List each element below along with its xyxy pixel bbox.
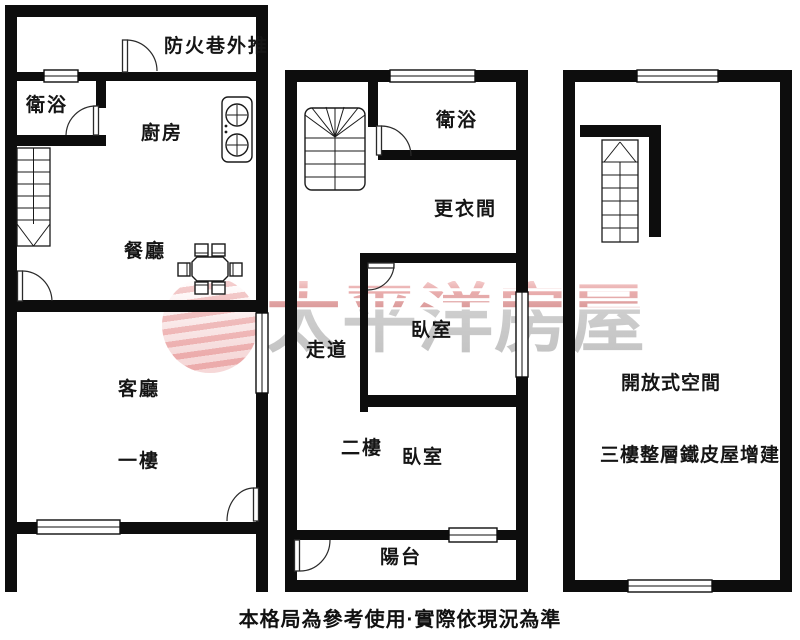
floor-plan-second-floor xyxy=(285,70,528,592)
wall xyxy=(285,580,528,592)
stairs-icon xyxy=(305,107,365,190)
stove-icon xyxy=(222,97,252,162)
label-balcony: 陽台 xyxy=(380,548,422,568)
wall xyxy=(360,395,528,407)
door-leaf xyxy=(254,488,259,521)
wall xyxy=(5,5,17,592)
label-open-space: 開放式空間 xyxy=(621,374,721,394)
door-arc xyxy=(300,540,330,571)
door-leaf xyxy=(295,540,300,571)
floor-plan-first-floor xyxy=(5,5,268,592)
door-arc xyxy=(127,40,157,71)
label-fire-lane: 防火巷外推 xyxy=(164,37,269,57)
wall xyxy=(368,82,378,127)
label-dressing-room: 更衣間 xyxy=(434,200,497,220)
door-arc xyxy=(66,106,96,135)
stairs-icon xyxy=(17,148,50,246)
label-bedroom-lower: 臥室 xyxy=(402,448,444,468)
label-corridor: 走道 xyxy=(306,341,348,361)
door-leaf xyxy=(18,271,23,301)
wall xyxy=(360,253,368,412)
wall xyxy=(378,150,528,160)
door-leaf xyxy=(377,126,382,155)
label-second-floor: 二樓 xyxy=(341,439,383,459)
label-bedroom-upper: 臥室 xyxy=(411,321,453,341)
wall xyxy=(360,253,528,263)
floor-plan-image: 太平洋房屋 xyxy=(0,0,800,640)
door-leaf xyxy=(123,40,128,72)
label-bathroom-1f: 衛浴 xyxy=(26,96,68,116)
door-arc xyxy=(227,488,254,521)
wall xyxy=(285,70,297,592)
floor-plan-drawing xyxy=(0,0,800,640)
door-leaf xyxy=(94,106,99,135)
door-leaf xyxy=(368,263,394,268)
wall xyxy=(780,70,792,592)
label-dining: 餐廳 xyxy=(124,242,166,262)
wall xyxy=(5,5,268,17)
label-bathroom-2f: 衛浴 xyxy=(436,111,478,131)
wall xyxy=(96,81,106,108)
wall xyxy=(580,125,661,137)
dining-table-icon xyxy=(178,244,242,294)
wall xyxy=(649,125,661,237)
disclaimer-text: 本格局為參考使用·實際依現況為準 xyxy=(0,603,800,632)
wall xyxy=(17,135,106,146)
label-third-floor-note: 三樓整層鐵皮屋增建 xyxy=(600,446,780,466)
label-living: 客廳 xyxy=(118,380,160,400)
stairs-icon xyxy=(602,140,638,242)
door-arc xyxy=(22,271,52,301)
label-kitchen: 廚房 xyxy=(141,124,183,144)
label-first-floor: 一樓 xyxy=(118,452,160,472)
wall xyxy=(5,300,268,312)
floor-plan-third-floor xyxy=(563,70,792,592)
wall xyxy=(563,70,575,592)
